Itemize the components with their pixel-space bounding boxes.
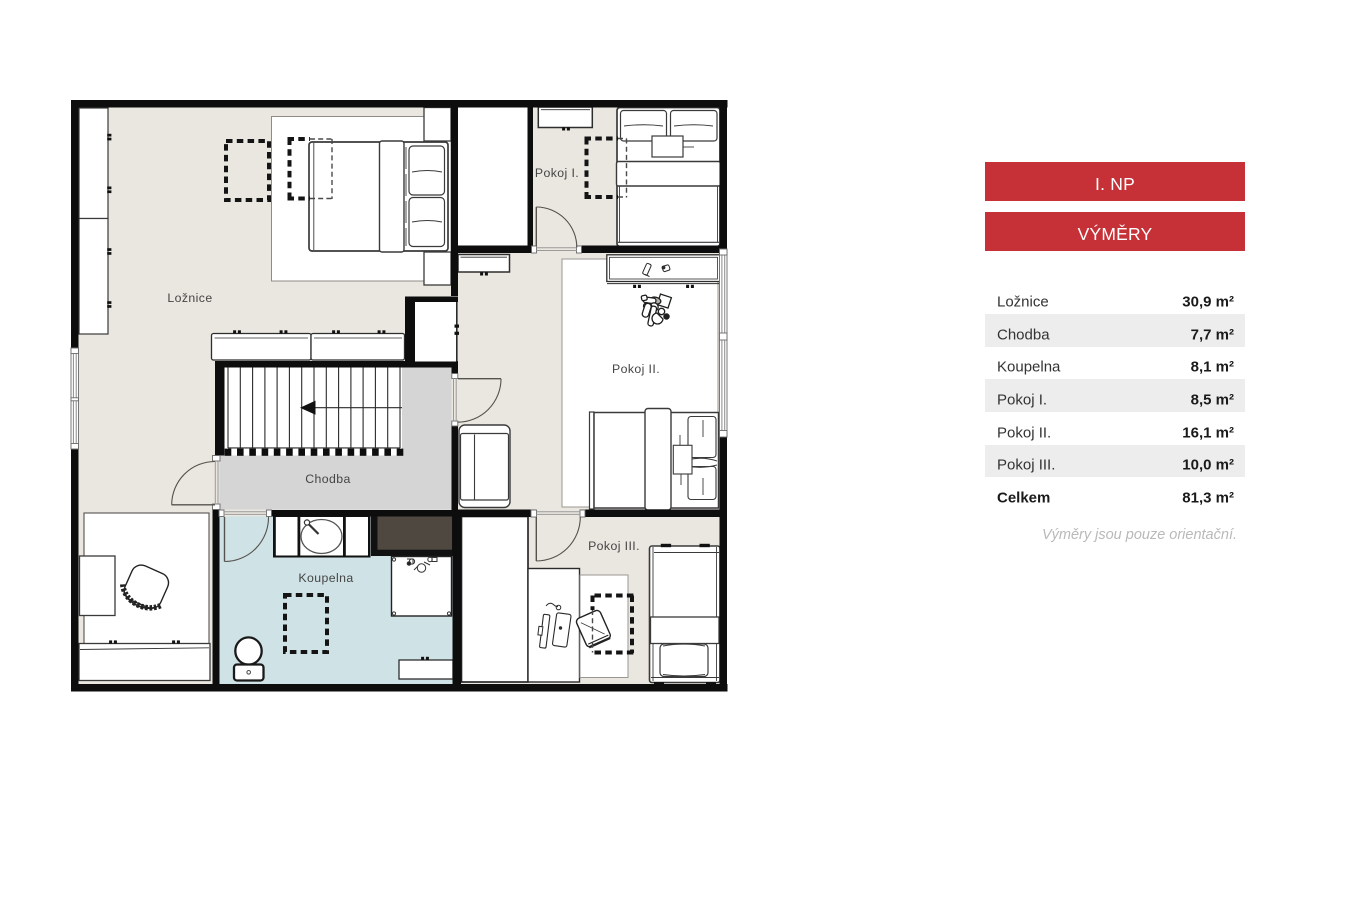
svg-text:Pokoj III.: Pokoj III. bbox=[588, 539, 640, 553]
svg-text:Ložnice: Ložnice bbox=[167, 291, 212, 305]
svg-text:Pokoj II.: Pokoj II. bbox=[612, 362, 660, 376]
svg-text:Chodba: Chodba bbox=[305, 472, 350, 486]
svg-text:Pokoj I.: Pokoj I. bbox=[535, 166, 579, 180]
svg-text:Koupelna: Koupelna bbox=[298, 571, 353, 585]
